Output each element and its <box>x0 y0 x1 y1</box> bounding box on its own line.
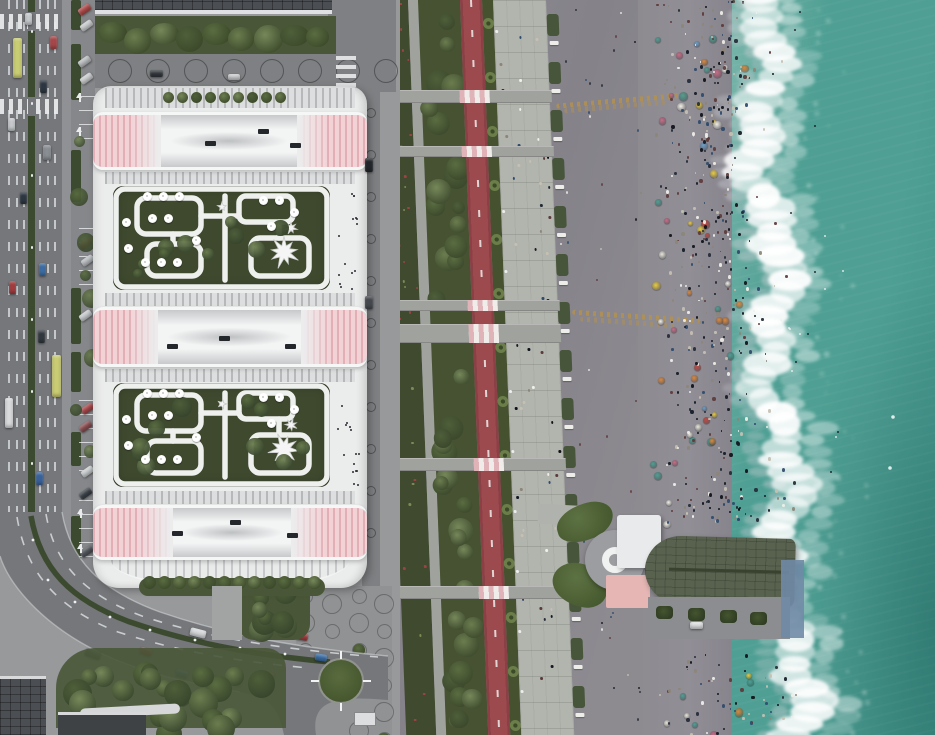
tree <box>434 429 453 447</box>
tree <box>444 235 468 258</box>
terrace-furniture <box>355 453 357 455</box>
roof-umbrella <box>141 258 150 267</box>
plaza-tree-pit <box>377 678 392 693</box>
palm-tree <box>483 18 494 29</box>
bike-path-crossing <box>459 90 489 103</box>
plaza-tree-pit <box>352 589 367 604</box>
terrace-furniture <box>353 483 355 485</box>
umbrella-pole <box>262 199 264 201</box>
pink-ribbed-roof-right <box>291 508 367 557</box>
ledge-tree <box>219 92 230 103</box>
tree <box>463 617 485 638</box>
terrace-furniture <box>354 270 356 272</box>
roof-umbrella <box>175 192 184 201</box>
ventilation-band <box>93 307 367 367</box>
park-crossing <box>374 458 566 471</box>
bike-path-crossing <box>462 146 492 157</box>
flower-dot <box>412 483 415 486</box>
tree <box>449 710 468 728</box>
crosswalk-top <box>336 56 356 87</box>
terrace-furniture <box>353 463 355 465</box>
roof-umbrella <box>141 455 150 464</box>
flower-dot <box>424 565 427 568</box>
tree <box>457 544 474 561</box>
ledge-tree <box>163 92 174 103</box>
light-post <box>31 30 34 33</box>
terrace-furniture <box>340 286 342 288</box>
kiosk <box>354 712 376 726</box>
roof-umbrella <box>164 214 173 223</box>
car <box>9 281 16 294</box>
umbrella-pole <box>127 247 129 249</box>
roof-vent <box>285 344 296 349</box>
umbrella-pole <box>278 199 280 201</box>
roof-umbrella <box>259 196 268 205</box>
entrance-tree <box>158 576 171 589</box>
terrace-furniture <box>337 428 339 430</box>
plaza-tree-pit <box>325 624 340 639</box>
roof-umbrella <box>164 411 173 420</box>
flower-dot <box>416 287 419 290</box>
palm-tree <box>508 666 519 677</box>
lane-line <box>54 0 56 540</box>
garden-tree <box>241 394 256 409</box>
park-crossing <box>379 586 571 599</box>
plaza-green-circle <box>318 658 364 704</box>
pink-fade <box>93 115 161 167</box>
garden-tree <box>225 216 237 228</box>
bench <box>555 185 564 189</box>
palm-tree <box>491 234 502 245</box>
lane-arrow <box>77 541 84 553</box>
lamp-post <box>495 30 498 33</box>
terrace-furniture <box>356 223 358 225</box>
shrub-patch <box>572 686 585 708</box>
deck-bush <box>720 610 737 623</box>
flower-dot <box>403 209 406 212</box>
facade-stripes <box>105 491 355 504</box>
person <box>515 407 518 410</box>
person <box>519 108 522 111</box>
roof-umbrella <box>157 455 166 464</box>
tree <box>176 26 203 51</box>
roof-umbrella <box>159 389 168 398</box>
lamp-post <box>502 210 505 213</box>
bike-path-crossing <box>479 586 509 599</box>
parking-hedge <box>71 352 81 392</box>
tree <box>252 602 267 617</box>
roof-umbrella <box>124 441 133 450</box>
shrub-patch <box>547 14 560 36</box>
roof-umbrella <box>157 258 166 267</box>
star-canopy <box>271 236 298 268</box>
lamp-post <box>514 510 517 513</box>
service-tree-pit <box>366 486 376 496</box>
lamp-post <box>509 390 512 393</box>
service-tree-pit <box>366 444 376 454</box>
roof-vent <box>258 129 269 134</box>
ledge-tree <box>261 92 272 103</box>
bench <box>557 233 566 237</box>
bus <box>5 398 13 428</box>
person <box>519 79 522 82</box>
ledge-tree <box>177 92 188 103</box>
light-post <box>31 318 34 321</box>
resort-building <box>93 86 367 588</box>
bike-path-crossing <box>468 300 498 311</box>
roof-umbrella <box>124 244 133 253</box>
flower-dot <box>423 693 426 696</box>
roof-umbrella <box>175 389 184 398</box>
umbrella-pole <box>293 408 295 410</box>
roof-umbrella <box>267 222 276 231</box>
terrace-furniture <box>344 263 346 265</box>
roof-umbrella <box>122 415 131 424</box>
band-middle <box>161 115 297 167</box>
light-post <box>31 246 34 249</box>
service-tree-pit <box>366 360 376 370</box>
tree-pit <box>260 59 284 83</box>
pier-blue-deck <box>781 560 804 638</box>
person <box>540 607 543 610</box>
pink-ribbed-roof-left <box>93 508 173 557</box>
ventilation-band <box>93 112 367 170</box>
bike-path-crossing <box>468 324 499 343</box>
roof-umbrella <box>148 214 157 223</box>
service-tree-pit <box>366 402 376 412</box>
arrow-head <box>77 541 83 549</box>
palm-tree <box>503 558 514 569</box>
tree-pit <box>108 59 132 83</box>
terrace-furniture <box>353 195 355 197</box>
shrub-patch <box>559 350 572 372</box>
terrace-furniture <box>355 470 357 472</box>
shrub-patch <box>548 62 561 84</box>
bench <box>575 713 584 717</box>
garden-tree <box>172 397 191 416</box>
umbrella-pole <box>151 217 153 219</box>
pink-ribbed-roof-left <box>93 310 158 364</box>
tree <box>280 25 309 47</box>
garden-tree <box>148 420 164 436</box>
flower-dot <box>404 175 407 178</box>
person <box>529 160 532 163</box>
umbrella-pole <box>160 458 162 460</box>
shrub-patch <box>571 638 584 660</box>
flower-dot <box>407 59 410 62</box>
garden-tree <box>177 235 194 252</box>
roof-umbrella <box>290 405 299 414</box>
street-green-strip <box>92 16 336 56</box>
palm-tree <box>487 126 498 137</box>
person <box>521 534 524 537</box>
terrace-furniture <box>341 405 343 407</box>
bus <box>52 355 61 397</box>
tree <box>70 404 82 416</box>
roof-umbrella <box>122 218 131 227</box>
deck-bush <box>750 612 767 625</box>
palm-tree <box>497 396 508 407</box>
bench <box>561 329 570 333</box>
entrance-tree <box>188 576 201 589</box>
light-post <box>31 462 34 465</box>
entrance-tree <box>293 576 306 589</box>
person <box>556 474 559 477</box>
umbrella-pole <box>195 239 197 241</box>
tree <box>124 28 151 54</box>
car <box>25 13 32 25</box>
roof-umbrella <box>259 393 268 402</box>
umbrella-pole <box>293 211 295 213</box>
entrance-tree <box>308 576 321 589</box>
lane-arrow <box>77 506 84 518</box>
plaza-tick <box>340 703 342 711</box>
tree <box>452 201 466 214</box>
plaza-tree-pit <box>295 667 315 687</box>
terrace-furniture <box>352 471 354 473</box>
flower-dot <box>404 286 407 289</box>
roof-vent <box>172 531 183 536</box>
lamp-post <box>518 630 521 633</box>
palm-tree <box>493 288 504 299</box>
person <box>549 216 552 219</box>
flower-dot <box>419 634 422 637</box>
roof-umbrella <box>267 419 276 428</box>
car <box>38 330 45 343</box>
flower-dot <box>408 503 411 506</box>
facade-stripes <box>105 88 355 108</box>
median-hedge <box>28 0 35 520</box>
roof-vent <box>167 344 178 349</box>
ledge-tree <box>191 92 202 103</box>
lane-arrow <box>76 124 83 136</box>
band-middle <box>173 508 291 557</box>
bike-path-crossing <box>474 458 504 471</box>
service-tree-pit <box>366 108 376 118</box>
bench <box>553 137 562 141</box>
car <box>690 622 703 629</box>
tree <box>70 188 88 206</box>
person <box>518 164 521 167</box>
flower-dot <box>404 186 407 189</box>
roof-vent <box>287 533 298 538</box>
facade-stripes <box>105 293 355 306</box>
plaza-tick <box>363 680 371 682</box>
lane-line <box>47 0 49 540</box>
bench <box>562 377 571 381</box>
plaza-tree-pit <box>374 594 394 614</box>
flower-dot <box>403 567 406 570</box>
north-building-roof <box>92 0 332 14</box>
umbrella-pole <box>262 396 264 398</box>
umbrella-pole <box>144 261 146 263</box>
person <box>551 665 554 668</box>
shrub-patch <box>554 206 567 228</box>
tree <box>449 661 474 685</box>
tree <box>207 715 235 735</box>
tree <box>271 611 294 634</box>
tree <box>98 22 127 43</box>
facade-stripes <box>105 172 355 184</box>
person <box>550 608 553 611</box>
lamp-post <box>521 690 524 693</box>
light-post <box>31 174 34 177</box>
building-walkway <box>212 586 242 640</box>
roof-umbrella <box>192 433 201 442</box>
roof-umbrella <box>143 192 152 201</box>
roof-vent <box>205 141 216 146</box>
palm-tree <box>501 504 512 515</box>
person <box>548 481 551 484</box>
pink-fade <box>93 508 173 557</box>
deck-bush <box>688 608 705 621</box>
shrub-patch <box>561 398 574 420</box>
arrow-head <box>76 90 82 98</box>
bus <box>13 38 22 78</box>
garden-tree <box>133 269 143 279</box>
umbrella-pole <box>160 261 162 263</box>
umbrella-pole <box>176 261 178 263</box>
plaza-tick <box>340 651 342 659</box>
flower-dot <box>409 311 412 314</box>
tree-pit <box>374 59 398 83</box>
ledge-tree <box>233 92 244 103</box>
palm-tree <box>489 180 500 191</box>
arrow-head <box>76 124 82 132</box>
facade-stripes <box>105 369 355 382</box>
umbrella-pole <box>162 195 164 197</box>
roof-umbrella <box>173 455 182 464</box>
car <box>150 70 163 77</box>
person <box>528 348 531 351</box>
lane-line <box>23 0 25 540</box>
umbrella-pole <box>125 418 127 420</box>
pink-ribbed-roof-right <box>301 310 367 364</box>
person <box>535 38 538 41</box>
person <box>500 63 503 66</box>
umbrella-pole <box>162 392 164 394</box>
parked-car <box>79 19 94 32</box>
umbrella-pole <box>270 225 272 227</box>
service-tree-pit <box>366 528 376 538</box>
roof-vent <box>219 336 230 341</box>
palm-tree <box>510 720 521 731</box>
tree <box>438 14 455 30</box>
umbrella-pole <box>144 458 146 460</box>
tree <box>453 369 470 385</box>
lane-arrow <box>76 90 83 102</box>
umbrella-pole <box>125 221 127 223</box>
roof-umbrella <box>173 258 182 267</box>
tree <box>456 497 473 513</box>
garden-paths <box>113 186 330 290</box>
garden-tree <box>246 438 263 455</box>
lane-line <box>8 0 10 540</box>
lamp-post <box>511 450 514 453</box>
plaza-tree-pit <box>298 643 313 658</box>
terrace-furniture <box>345 424 347 426</box>
ventilation-band <box>93 505 367 560</box>
car <box>365 296 373 309</box>
umbrella-pole <box>178 195 180 197</box>
umbrella-pole <box>195 436 197 438</box>
plaza-tree-pit <box>374 648 394 668</box>
plaza-tree-pit <box>377 624 392 639</box>
tree <box>462 689 483 710</box>
entrance-tree <box>143 576 156 589</box>
pier-pink-roof <box>606 575 650 608</box>
palm-tree <box>506 612 517 623</box>
tree <box>306 27 329 47</box>
ledge-tree <box>275 92 286 103</box>
shrub-patch <box>550 110 563 132</box>
car <box>50 36 57 49</box>
umbrella-pole <box>146 195 148 197</box>
person <box>520 407 523 410</box>
terrace-furniture <box>351 272 353 274</box>
person <box>522 529 525 532</box>
car <box>36 472 43 485</box>
roof-vent <box>230 520 241 525</box>
entrance-tree <box>248 576 261 589</box>
terrace-furniture <box>350 429 352 431</box>
lamp-post <box>504 270 507 273</box>
bench <box>550 41 559 45</box>
pink-fade <box>297 115 367 167</box>
car <box>365 158 373 172</box>
shrub-patch <box>556 254 569 276</box>
flower-dot <box>409 134 412 137</box>
car <box>8 118 15 131</box>
service-tree-pit <box>366 192 376 202</box>
person <box>515 243 518 246</box>
plaza-tree-pit <box>349 613 369 633</box>
umbrella-pole <box>127 444 129 446</box>
roof-umbrella <box>159 192 168 201</box>
roof-garden <box>113 383 330 487</box>
pink-ribbed-roof-left <box>93 115 161 167</box>
sidewalk <box>62 0 71 595</box>
person <box>505 135 508 138</box>
roof-umbrella <box>148 411 157 420</box>
tree <box>228 27 254 50</box>
roof-umbrella <box>143 389 152 398</box>
tree <box>254 25 283 53</box>
umbrella-pole <box>146 392 148 394</box>
flower-dot <box>403 261 406 264</box>
parking-hedge <box>71 572 81 598</box>
entrance-tree <box>263 576 276 589</box>
bench <box>574 665 583 669</box>
aerial-scene <box>0 0 935 735</box>
umbrella-pole <box>176 458 178 460</box>
roof-umbrella <box>275 393 284 402</box>
shrub-patch <box>552 158 565 180</box>
entrance-tree <box>173 576 186 589</box>
plaza-tree-pit <box>374 702 394 722</box>
umbrella-pole <box>178 392 180 394</box>
roof-garden <box>113 186 330 290</box>
roof-umbrella <box>290 208 299 217</box>
person <box>540 677 543 680</box>
light-post <box>31 390 34 393</box>
parked-car <box>78 487 93 500</box>
pink-ribbed-roof-right <box>297 115 367 167</box>
tree <box>440 37 455 51</box>
lane-line <box>16 0 18 540</box>
bench <box>551 89 560 93</box>
plaza-tree <box>353 644 364 655</box>
